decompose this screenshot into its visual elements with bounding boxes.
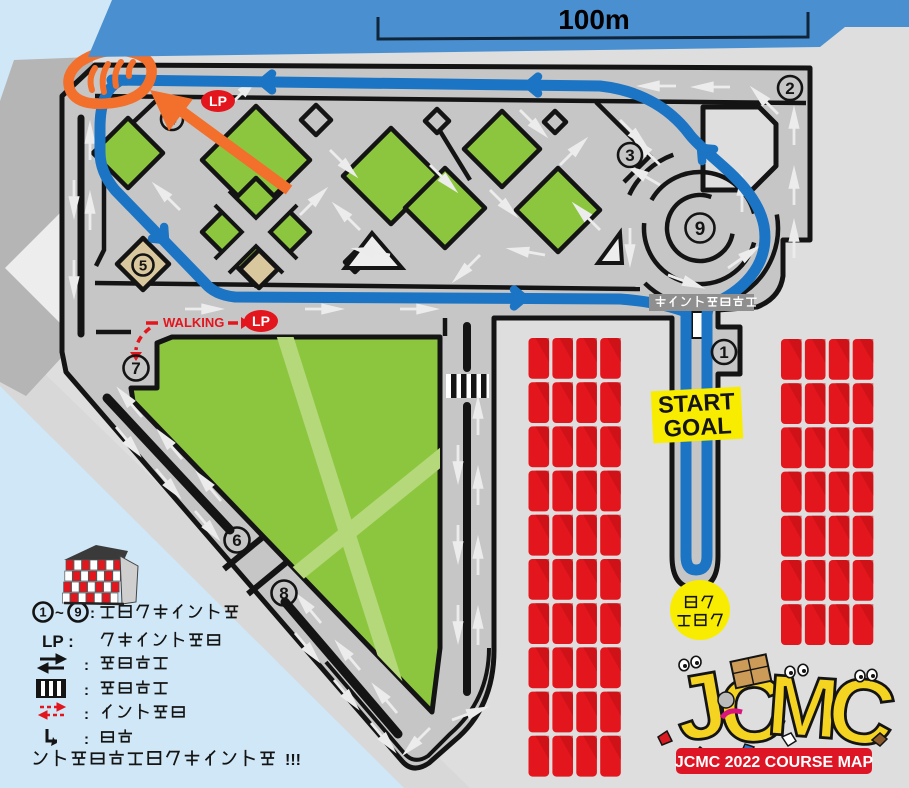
svg-text:3: 3 [625, 146, 634, 165]
svg-text::: : [84, 682, 89, 699]
svg-text::: : [90, 605, 95, 622]
svg-text:JCMC 2022 COURSE MAP: JCMC 2022 COURSE MAP [675, 754, 874, 771]
svg-text:GOAL: GOAL [663, 412, 732, 442]
svg-text:8: 8 [279, 584, 288, 603]
svg-text:LP: LP [252, 313, 270, 329]
svg-text:WALKING: WALKING [163, 315, 224, 330]
svg-text:6: 6 [232, 531, 241, 550]
svg-text:100m: 100m [558, 4, 630, 35]
svg-text:9: 9 [695, 219, 706, 240]
svg-text:9: 9 [74, 605, 81, 620]
svg-text:5: 5 [139, 257, 147, 274]
svg-text::: : [84, 657, 89, 674]
svg-text::: : [84, 706, 89, 723]
svg-text:LP: LP [209, 93, 227, 109]
svg-text:2: 2 [785, 79, 794, 98]
svg-text:LP :: LP : [42, 632, 74, 651]
svg-text::: : [84, 731, 89, 748]
svg-text:1: 1 [39, 605, 46, 620]
svg-text:7: 7 [131, 359, 140, 378]
svg-text:1: 1 [719, 343, 728, 362]
svg-text:~: ~ [55, 605, 64, 622]
svg-text:!!!: !!! [285, 752, 301, 769]
